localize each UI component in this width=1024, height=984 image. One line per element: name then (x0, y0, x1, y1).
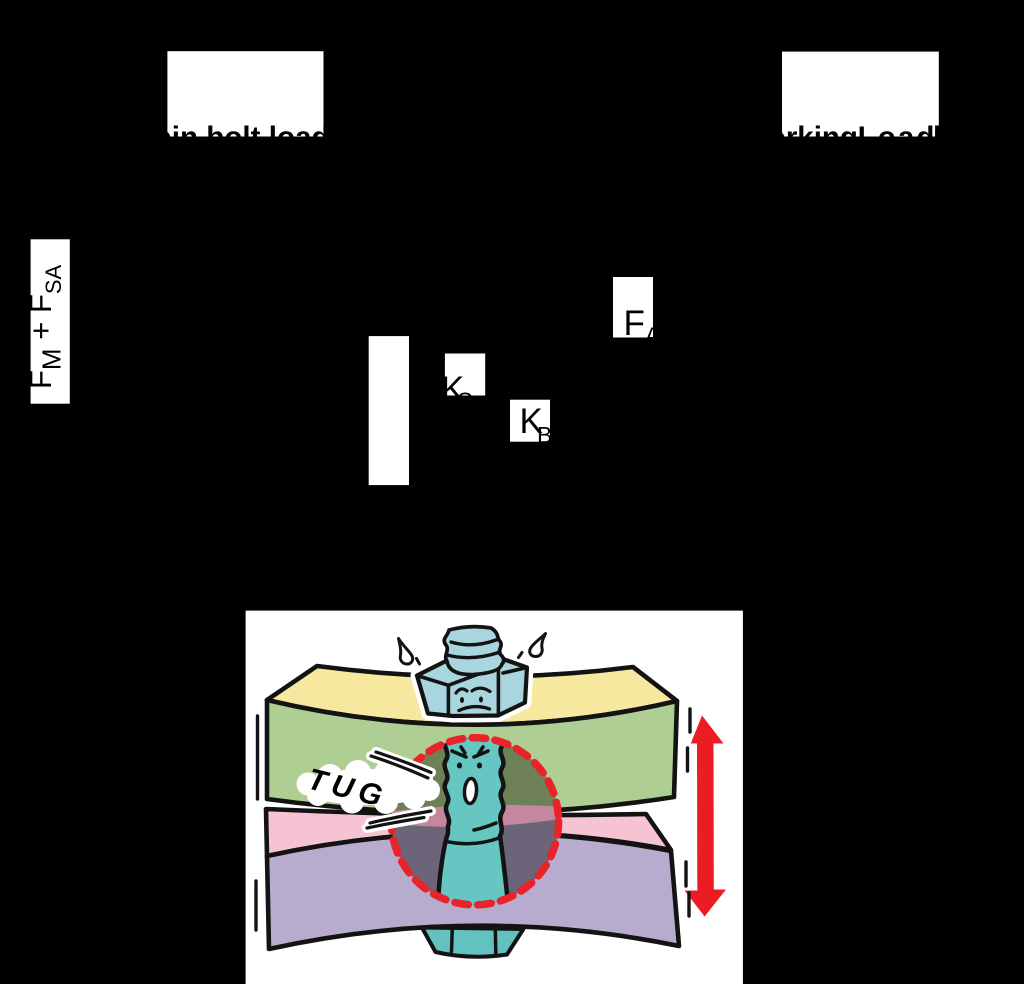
svg-text:Loadl: Loadl (858, 121, 944, 154)
svg-text:orking: orking (768, 121, 858, 154)
svg-text:e in bolt load: e in bolt load (147, 121, 330, 154)
